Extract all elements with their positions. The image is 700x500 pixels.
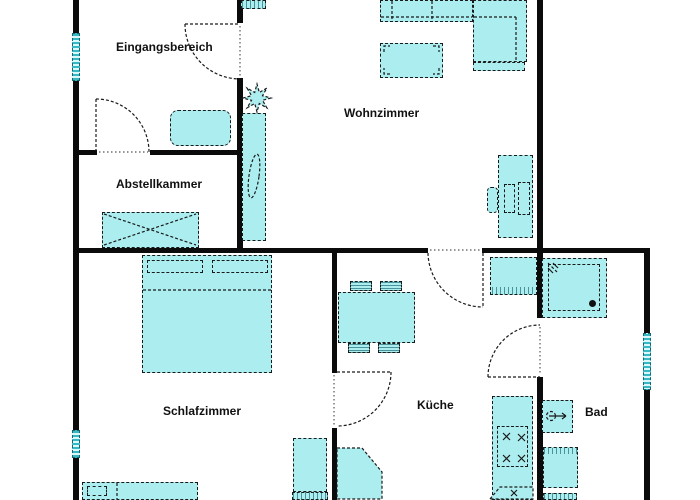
door-swing-arc bbox=[428, 253, 483, 307]
floor-plan: Eingangsbereich Abstellkammer Wohnzimmer… bbox=[0, 0, 700, 500]
door-swing-arc bbox=[96, 99, 149, 152]
entry-sideboard bbox=[170, 110, 231, 146]
door-entry-storage bbox=[96, 99, 149, 152]
wall-bedroom-kitchen-lower bbox=[332, 428, 337, 500]
wall-entry-storage-right bbox=[150, 150, 243, 155]
door-swing-arc bbox=[488, 325, 540, 377]
bath-washbasin bbox=[542, 400, 573, 433]
living-radiator bbox=[241, 0, 266, 9]
wall-right-outer-upper bbox=[537, 0, 543, 252]
sofa-horizontal-section bbox=[380, 0, 473, 22]
tv-board-detail-b bbox=[518, 182, 530, 215]
sofa-vertical-section bbox=[473, 0, 527, 62]
door-swing-arc bbox=[337, 372, 391, 426]
bath-washer-panel bbox=[544, 448, 577, 454]
chair-bottom-left bbox=[348, 343, 370, 353]
door-kitchen-bedroom bbox=[334, 372, 391, 426]
dining-table bbox=[338, 292, 415, 343]
kitchen-stove bbox=[497, 426, 528, 467]
tv-screen bbox=[487, 187, 498, 213]
room-label-kueche: Küche bbox=[417, 398, 454, 412]
chair-bottom-right bbox=[378, 343, 400, 353]
coffee-table bbox=[380, 43, 443, 78]
tv-board-detail-a bbox=[504, 184, 515, 213]
bed-pillow-right bbox=[212, 260, 268, 273]
bedroom-dresser bbox=[293, 438, 327, 492]
door-living-kitchen bbox=[428, 250, 483, 307]
room-label-schlafzimmer: Schlafzimmer bbox=[163, 404, 241, 418]
chair-top-left bbox=[350, 281, 372, 291]
bath-fixture-bottom bbox=[543, 493, 577, 500]
bed-pillow-left bbox=[147, 260, 203, 273]
room-label-wohnzimmer: Wohnzimmer bbox=[344, 106, 419, 120]
wall-mid-horizontal-right bbox=[482, 248, 650, 253]
wall-entry-storage-left bbox=[73, 150, 97, 155]
window-bath-right bbox=[643, 333, 651, 390]
wall-mid-horizontal-left bbox=[73, 248, 428, 253]
door-kitchen-bath bbox=[488, 325, 540, 377]
plant-icon bbox=[243, 84, 271, 112]
wall-bedroom-kitchen-upper bbox=[332, 248, 337, 373]
bedroom-dresser-base bbox=[292, 492, 328, 500]
living-shelf-tall bbox=[242, 113, 266, 241]
room-label-bad: Bad bbox=[585, 405, 608, 419]
sofa-footrest bbox=[473, 62, 525, 71]
kitchen-corner-unit bbox=[337, 448, 382, 499]
kitchen-fridge-vent bbox=[492, 287, 535, 294]
window-entry-left bbox=[72, 33, 80, 81]
window-bedroom-left bbox=[72, 430, 80, 458]
room-label-eingangsbereich: Eingangsbereich bbox=[116, 40, 213, 54]
room-label-abstellkammer: Abstellkammer bbox=[116, 177, 202, 191]
chair-top-right bbox=[380, 281, 402, 291]
bedroom-wardrobe-drawer bbox=[87, 486, 107, 496]
shower-drain-icon bbox=[589, 300, 596, 307]
storage-shelf bbox=[102, 212, 199, 248]
